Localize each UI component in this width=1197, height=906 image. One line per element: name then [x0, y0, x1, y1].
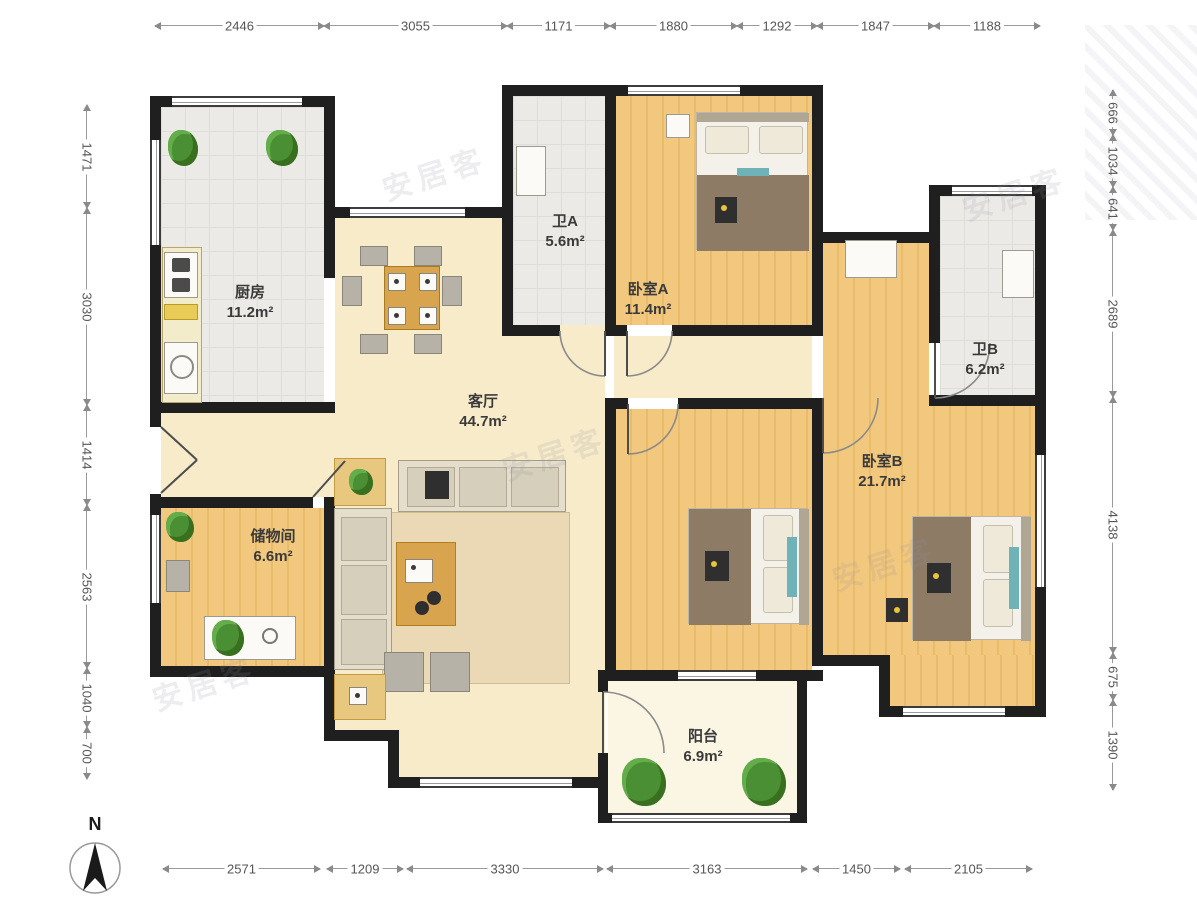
dimension-label: 4138 [1106, 508, 1121, 543]
room-area: 44.7m² [423, 412, 543, 432]
dimension-left: 700 [86, 727, 87, 779]
dimension-right: 675 [1112, 653, 1113, 700]
room-area: 6.2m² [925, 360, 1045, 380]
dimension-label: 3055 [398, 19, 433, 34]
dimension-right: 4138 [1112, 397, 1113, 653]
dimension-label: 1209 [348, 862, 383, 877]
dimension-bottom: 2571 [163, 868, 320, 869]
dimension-bottom: 2105 [905, 868, 1032, 869]
dimension-label: 3330 [488, 862, 523, 877]
room-area: 11.2m² [190, 303, 310, 323]
dimension-left: 1471 [86, 105, 87, 208]
dimension-right: 666 [1112, 90, 1113, 135]
dimension-label: 1414 [80, 438, 95, 473]
north-compass: N [60, 810, 130, 905]
dimension-label: 666 [1106, 99, 1121, 127]
room-area: 6.6m² [213, 547, 333, 567]
dimension-bottom: 3163 [607, 868, 807, 869]
dimension-top: 2446 [155, 25, 324, 26]
dimension-label: 1847 [858, 19, 893, 34]
dimension-left: 2563 [86, 505, 87, 668]
dimension-top: 1292 [737, 25, 817, 26]
room-label-living: 客厅 44.7m² [423, 392, 543, 431]
dimension-label: 1034 [1106, 144, 1121, 179]
dimension-right: 1034 [1112, 135, 1113, 187]
dimension-label: 2105 [951, 862, 986, 877]
dimension-label: 2689 [1106, 296, 1121, 331]
compass-needle [83, 843, 107, 891]
dimension-top: 3055 [324, 25, 507, 26]
dimension-label: 1040 [80, 680, 95, 715]
dimension-label: 1471 [80, 139, 95, 174]
dimension-top: 1880 [610, 25, 737, 26]
dimension-left: 1414 [86, 405, 87, 505]
dimension-label: 1188 [970, 19, 1004, 34]
room-name: 卫A [505, 212, 625, 232]
dimension-label: 3030 [80, 289, 95, 324]
room-area: 5.6m² [505, 232, 625, 252]
dimension-label: 641 [1106, 195, 1121, 223]
dimension-top: 1847 [817, 25, 934, 26]
dimension-label: 1390 [1106, 728, 1121, 763]
dimension-top: 1188 [934, 25, 1040, 26]
room-area: 21.7m² [822, 472, 942, 492]
dimension-right: 2689 [1112, 230, 1113, 397]
room-name: 卧室B [822, 452, 942, 472]
room-name: 阳台 [643, 727, 763, 747]
dimension-label: 1880 [656, 19, 691, 34]
room-label-kitchen: 厨房 11.2m² [190, 283, 310, 322]
room-label-storage: 储物间 6.6m² [213, 527, 333, 566]
room-label-bedroom-a: 卧室A 11.4m² [588, 280, 708, 319]
dimension-bottom: 3330 [407, 868, 603, 869]
floorplan-image: 厨房 11.2m² 卫A 5.6m² 卧室A 11.4m² 卫B 6.2m² 客… [0, 0, 1197, 906]
room-name: 厨房 [190, 283, 310, 303]
dimension-label: 2571 [224, 862, 259, 877]
compass-n-label: N [89, 814, 102, 834]
dimension-bottom: 1450 [813, 868, 900, 869]
room-label-bath-b: 卫B 6.2m² [925, 340, 1045, 379]
dimension-label: 675 [1106, 663, 1121, 691]
dimension-left: 3030 [86, 208, 87, 405]
dimension-left: 1040 [86, 668, 87, 727]
room-label-bedroom-b: 卧室B 21.7m² [822, 452, 942, 491]
door-arcs [0, 0, 1197, 906]
room-name: 卫B [925, 340, 1045, 360]
dimension-label: 1292 [760, 19, 795, 34]
dimension-right: 1390 [1112, 700, 1113, 790]
room-name: 储物间 [213, 527, 333, 547]
dimension-label: 1450 [839, 862, 874, 877]
room-name: 卧室A [588, 280, 708, 300]
dimension-label: 3163 [690, 862, 725, 877]
room-area: 6.9m² [643, 747, 763, 767]
dimension-bottom: 1209 [327, 868, 403, 869]
room-label-bath-a: 卫A 5.6m² [505, 212, 625, 251]
dimension-label: 700 [80, 739, 95, 767]
dimension-label: 2563 [80, 569, 95, 604]
dimension-top: 1171 [507, 25, 610, 26]
dimension-label: 1171 [542, 19, 576, 34]
dimension-label: 2446 [222, 19, 257, 34]
room-label-balcony: 阳台 6.9m² [643, 727, 763, 766]
dimension-right: 641 [1112, 187, 1113, 230]
room-area: 11.4m² [588, 300, 708, 320]
room-name: 客厅 [423, 392, 543, 412]
